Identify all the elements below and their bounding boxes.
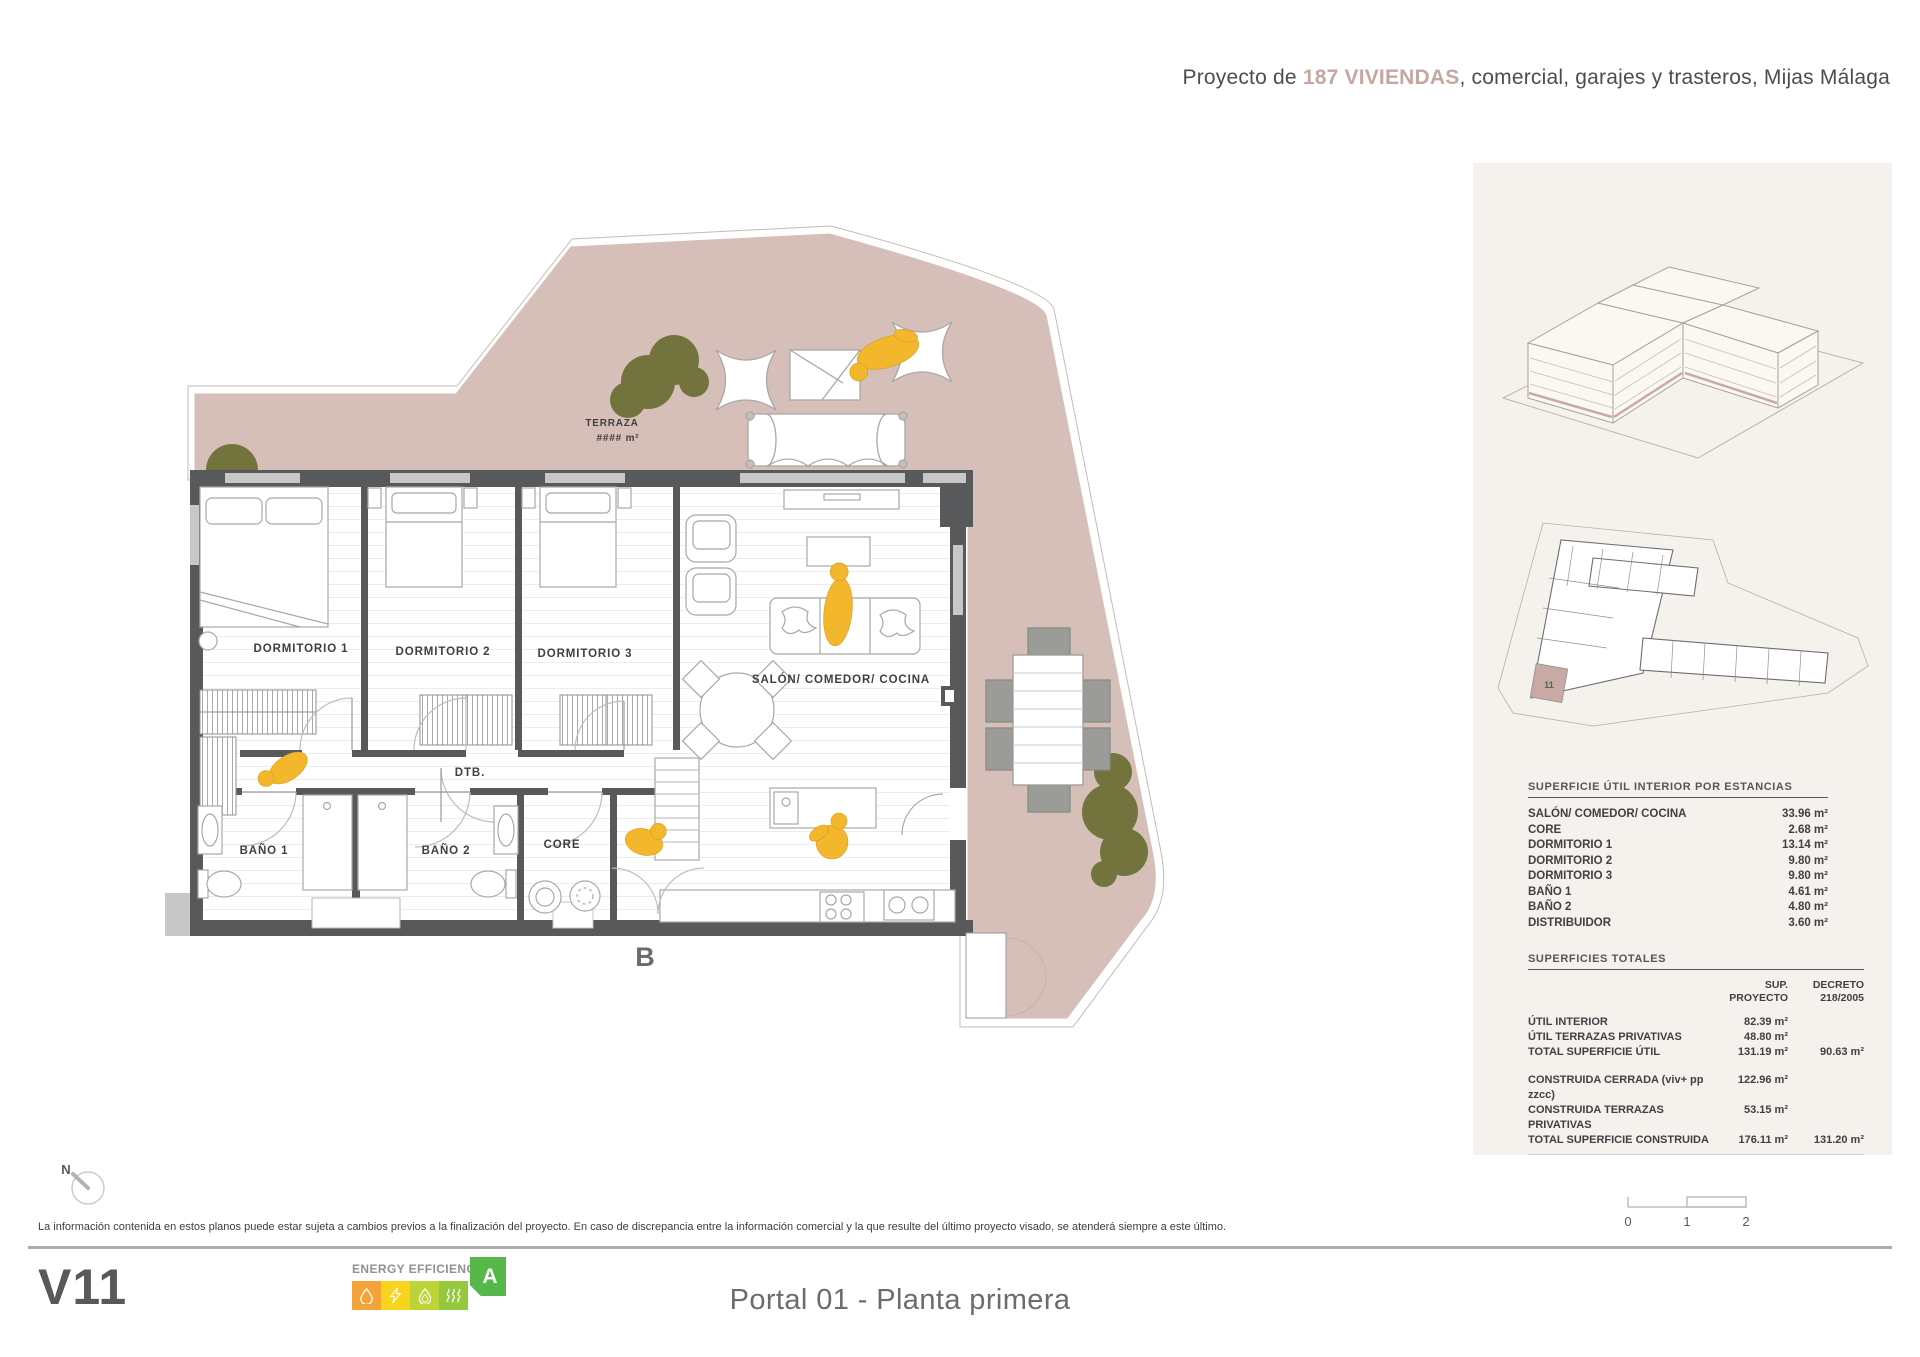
svg-text:2: 2 [1742,1214,1749,1229]
table-row: DORMITORIO 29.80 m² [1528,854,1828,870]
table-row: BAÑO 14.61 m² [1528,885,1828,901]
header-prefix: Proyecto de [1183,66,1303,89]
header-suffix: , comercial, garajes y trasteros, Mijas … [1459,66,1890,89]
table-row: DISTRIBUIDOR3.60 m² [1528,916,1828,932]
surface-table-totals: SUPERFICIES TOTALES SUP.PROYECTO DECRETO… [1528,953,1864,1155]
north-indicator: N [61,1162,104,1204]
keyplan-unit-label: 11 [1544,680,1554,690]
table2-header: SUP.PROYECTO DECRETO218/2005 [1528,979,1864,1005]
svg-text:0: 0 [1624,1214,1631,1229]
dorm3-label: DORMITORIO 3 [538,648,633,660]
table-row: BAÑO 24.80 m² [1528,900,1828,916]
plan-sheet: TERRAZA #### m² [0,0,1920,1357]
dorm1-label: DORMITORIO 1 [254,643,349,655]
surface-table-interior: SUPERFICIE ÚTIL INTERIOR POR ESTANCIAS S… [1528,781,1828,931]
table2-title: SUPERFICIES TOTALES [1528,953,1864,970]
disclaimer-text: La información contenida en estos planos… [38,1221,1226,1233]
dtb-label: DTB. [455,767,485,779]
page-title: Portal 01 - Planta primera [0,1284,1800,1317]
table-row: TOTAL SUPERFICIE CONSTRUIDA176.11 m²131.… [1528,1133,1864,1148]
terraza-area-label: #### m² [597,433,640,444]
block-label: B [635,942,655,972]
table-row: CORE2.68 m² [1528,823,1828,839]
building-axonometric [1473,193,1892,523]
north-label: N [61,1162,70,1177]
table-row: ÚTIL TERRAZAS PRIVATIVAS48.80 m² [1528,1030,1864,1045]
table-row: DORMITORIO 39.80 m² [1528,869,1828,885]
project-header: Proyecto de 187 VIVIENDAS, comercial, ga… [1183,66,1891,90]
dorm2-label: DORMITORIO 2 [396,646,491,658]
svg-text:1: 1 [1683,1214,1690,1229]
scale-bar: 0 1 2 [1608,1190,1778,1238]
bano2-label: BAÑO 2 [422,844,471,857]
table-row: ÚTIL INTERIOR82.39 m² [1528,1015,1864,1030]
table-row: TOTAL SUPERFICIE ÚTIL131.19 m²90.63 m² [1528,1045,1864,1060]
table-row: CONSTRUIDA TERRAZAS PRIVATIVAS53.15 m² [1528,1103,1864,1133]
header-highlight: 187 VIVIENDAS [1303,66,1460,89]
table-row: DORMITORIO 113.14 m² [1528,838,1828,854]
info-sidebar: 11 SUPERFICIE ÚTIL INTERIOR POR ESTANCIA… [1473,163,1892,1155]
table-row: CONSTRUIDA CERRADA (viv+ pp zzcc)122.96 … [1528,1073,1864,1103]
core-label: CORE [544,839,581,851]
site-key-plan: 11 [1473,488,1892,733]
table1-title: SUPERFICIE ÚTIL INTERIOR POR ESTANCIAS [1528,781,1828,798]
bano1-label: BAÑO 1 [240,844,289,857]
terraza-label: TERRAZA [585,418,638,429]
salon-label: SALÓN/ COMEDOR/ COCINA [752,673,930,686]
footer-divider [28,1246,1892,1249]
table-row: SALÓN/ COMEDOR/ COCINA33.96 m² [1528,807,1828,823]
